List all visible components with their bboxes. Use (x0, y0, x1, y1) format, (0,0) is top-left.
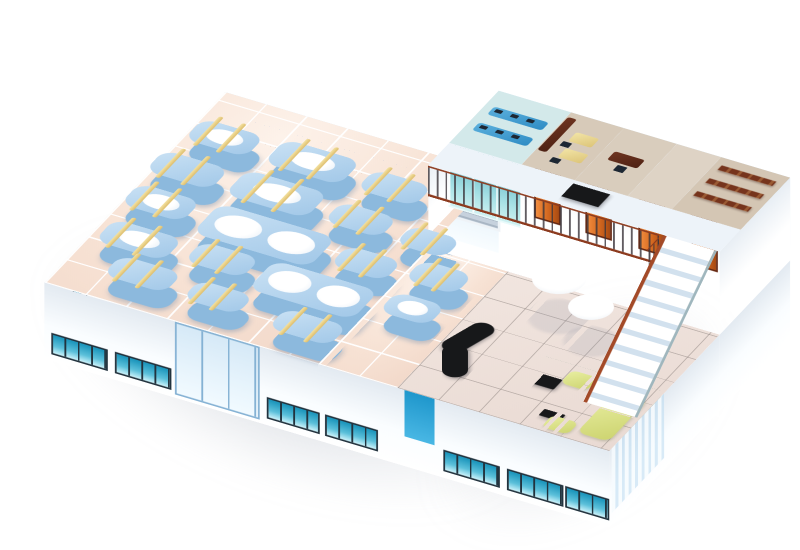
scene-stage (0, 0, 800, 550)
window-strip (267, 397, 320, 434)
window-strip (443, 450, 500, 488)
blue-door (404, 390, 434, 445)
machine-lid (393, 298, 432, 318)
facility-3d-floorplan-render (0, 0, 800, 550)
window-strip (325, 414, 378, 451)
machine-lid (261, 267, 318, 297)
machine-lid (309, 281, 366, 311)
window-strip (51, 333, 108, 371)
window-strip (565, 486, 609, 521)
window-strip (507, 469, 564, 507)
floorplan-plane (44, 92, 790, 451)
machine-lid (261, 227, 323, 259)
window-strip (115, 352, 172, 390)
reception-desk (442, 345, 468, 378)
